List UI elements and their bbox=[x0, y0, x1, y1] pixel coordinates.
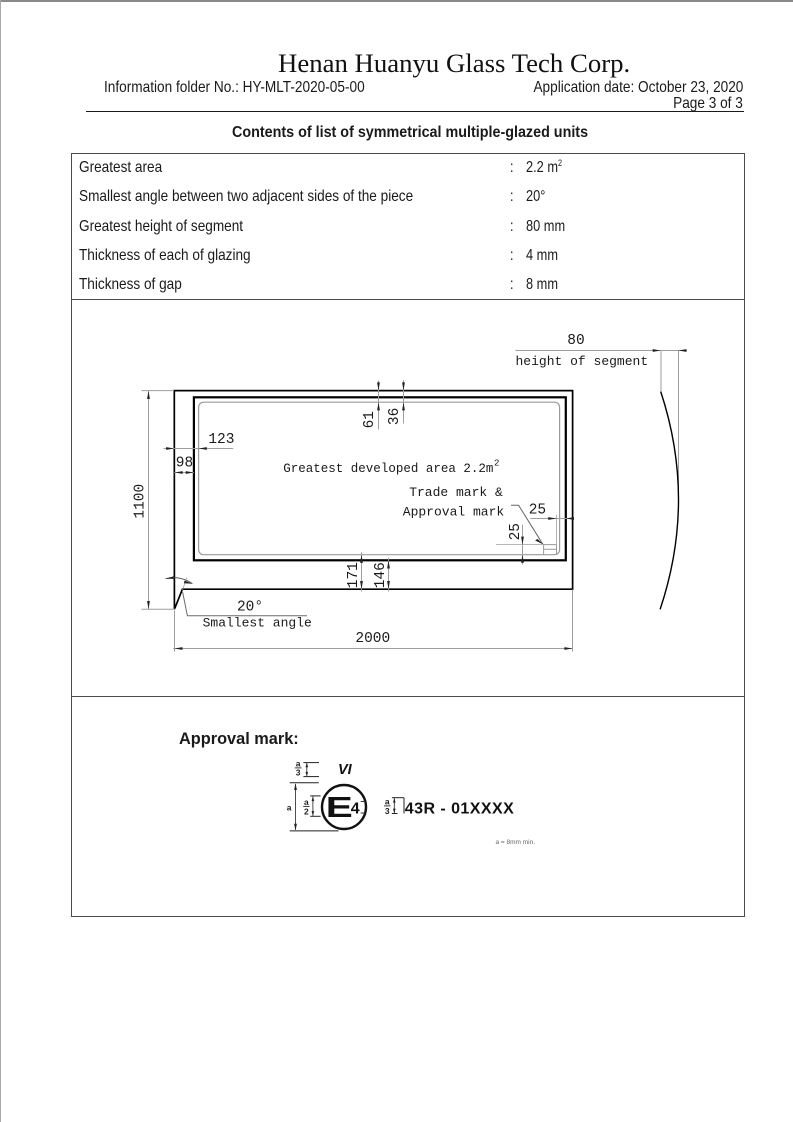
svg-text:Trade mark &: Trade mark & bbox=[409, 485, 503, 500]
svg-text:2000: 2000 bbox=[355, 631, 390, 647]
svg-text:Approval mark: Approval mark bbox=[403, 505, 505, 520]
svg-text:25: 25 bbox=[508, 523, 524, 540]
svg-text:a = 8mm min.: a = 8mm min. bbox=[496, 839, 536, 846]
svg-text:98: 98 bbox=[176, 456, 193, 472]
svg-text:3: 3 bbox=[296, 768, 301, 778]
svg-text:2: 2 bbox=[494, 459, 499, 469]
svg-text:171: 171 bbox=[346, 562, 362, 588]
svg-text:61: 61 bbox=[362, 411, 378, 428]
svg-text:43R - 01XXXX: 43R - 01XXXX bbox=[405, 800, 514, 817]
svg-text:146: 146 bbox=[373, 562, 389, 588]
svg-text:a: a bbox=[287, 802, 292, 812]
svg-text:3: 3 bbox=[385, 806, 390, 816]
svg-text:123: 123 bbox=[208, 432, 234, 448]
svg-text:80: 80 bbox=[567, 333, 584, 349]
svg-text:VI: VI bbox=[338, 762, 353, 778]
svg-text:height of segment: height of segment bbox=[516, 354, 649, 369]
svg-text:20°: 20° bbox=[237, 600, 263, 616]
svg-text:25: 25 bbox=[529, 503, 546, 519]
svg-text:2: 2 bbox=[304, 806, 309, 816]
svg-text:Smallest angle: Smallest angle bbox=[203, 616, 312, 631]
svg-text:1100: 1100 bbox=[132, 484, 148, 519]
svg-text:36: 36 bbox=[387, 408, 403, 425]
svg-text:4: 4 bbox=[351, 801, 360, 818]
svg-text:E: E bbox=[326, 792, 353, 824]
svg-text:Greatest developed area 2.2m: Greatest developed area 2.2m bbox=[283, 462, 493, 476]
